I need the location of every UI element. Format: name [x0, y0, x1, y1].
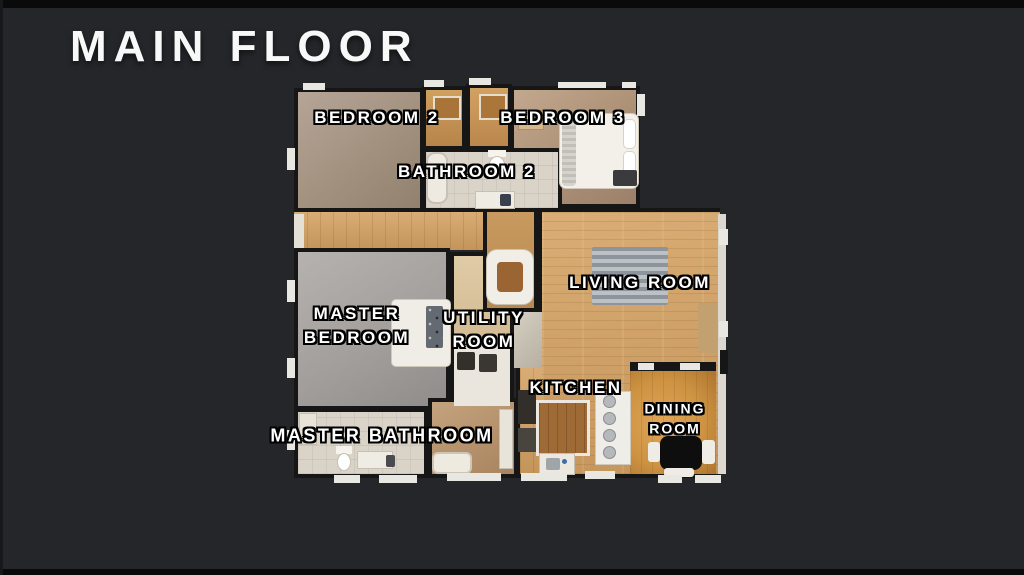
- entry-mat: [698, 303, 718, 353]
- wall-tab: [447, 473, 501, 481]
- wall-tab: [719, 229, 728, 245]
- wall-tab: [558, 82, 606, 88]
- wall-tab: [379, 475, 417, 483]
- kitchen-faucet: [562, 459, 567, 464]
- floor-plan: BEDROOM 2 BEDROOM 3 BATHROOM 2 MASTER BE…: [286, 82, 746, 484]
- bedroom-3-label: BEDROOM 3: [500, 106, 625, 130]
- wall-tab: [521, 473, 567, 481]
- utility-room-label-line1: UTILITY: [443, 306, 525, 330]
- wall-tab: [719, 321, 728, 337]
- wall-tab: [303, 83, 325, 90]
- living-room-label: LIVING ROOM: [569, 271, 711, 295]
- master-bedroom-label: MASTER BEDROOM: [304, 302, 410, 350]
- shower-tub: [432, 452, 472, 474]
- utility-dryer: [479, 354, 497, 372]
- page-background: { "title": "MAIN FLOOR", "rooms": { "bed…: [0, 0, 1024, 575]
- dining-chair: [648, 442, 660, 462]
- wall-opening: [680, 363, 700, 370]
- wall-tab: [585, 471, 615, 479]
- letterbox-top: [0, 0, 1024, 8]
- letterbox-bottom: [0, 569, 1024, 575]
- mbath-item: [386, 455, 395, 467]
- wall-tab: [287, 280, 295, 302]
- bathroom2-towel: [500, 194, 511, 206]
- wall-opening: [638, 363, 654, 370]
- wall-tab: [334, 475, 360, 483]
- dining-table: [660, 436, 702, 470]
- kitchen-stove: [518, 428, 536, 452]
- right-wall-black-segment: [720, 350, 728, 374]
- wall-tab: [622, 82, 636, 88]
- utility-washer: [457, 352, 475, 370]
- kitchen-island: [536, 400, 590, 456]
- bathroom-2-label: BATHROOM 2: [398, 160, 536, 184]
- utility-room-label: UTILITY ROOM: [443, 306, 525, 354]
- master-bedroom-label-line1: MASTER: [304, 302, 410, 326]
- wall-tab: [287, 358, 295, 378]
- wall-tab: [658, 475, 682, 483]
- kitchen-sink-basin: [546, 458, 560, 470]
- wall-tab: [287, 148, 295, 170]
- entry-armchair-seat: [497, 262, 523, 292]
- page-title: MAIN FLOOR: [70, 22, 419, 72]
- dining-room-label: DINING ROOM: [645, 399, 706, 438]
- dining-room-label-line2: ROOM: [645, 419, 706, 439]
- counter-stool: [603, 412, 616, 425]
- counter-stool: [603, 446, 616, 459]
- master-bedroom-label-line2: BEDROOM: [304, 326, 410, 350]
- bathroom2-toilet-tank: [488, 150, 506, 157]
- shower-counter: [500, 410, 512, 468]
- dining-chair: [702, 440, 715, 464]
- master-bathroom-label: MASTER BATHROOM: [270, 423, 493, 448]
- letterbox-left: [0, 0, 3, 575]
- bedroom3-bench: [613, 170, 637, 186]
- kitchen-label: KITCHEN: [529, 376, 622, 400]
- wall-tab: [637, 94, 645, 116]
- counter-stool: [603, 429, 616, 442]
- right-exterior-wall: [718, 214, 726, 474]
- utility-room-label-line2: ROOM: [443, 330, 525, 354]
- hallway-end-cap: [294, 214, 304, 248]
- bedroom-2-label: BEDROOM 2: [314, 106, 439, 130]
- wall-tab: [469, 78, 491, 85]
- wall-tab: [424, 80, 444, 87]
- master-bed-blanket: [426, 306, 443, 348]
- hallway-floor: [294, 212, 486, 250]
- wall-tab: [695, 475, 721, 483]
- mbath-toilet: [338, 454, 350, 470]
- dining-top-wall: [630, 362, 716, 371]
- dining-room-label-line1: DINING: [645, 399, 706, 419]
